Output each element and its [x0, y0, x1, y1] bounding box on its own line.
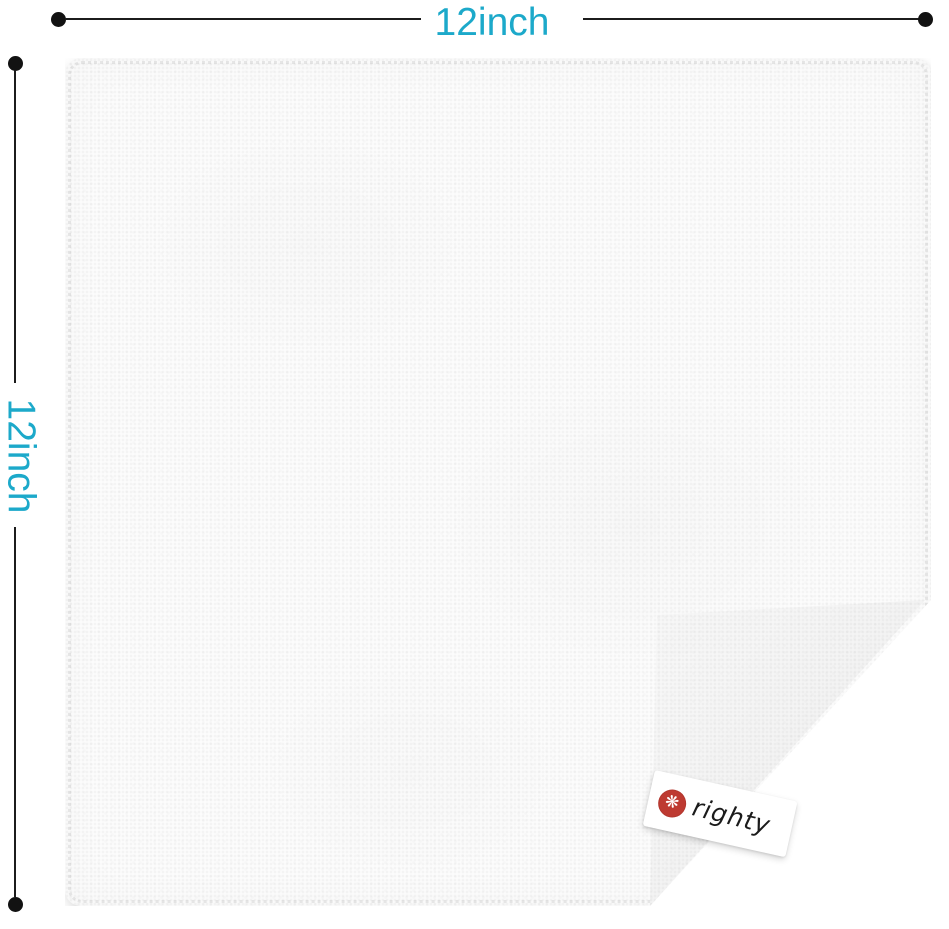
dimension-label-width: 12inch	[435, 3, 550, 42]
cloth-stitched-hem	[68, 61, 928, 903]
dimension-line-left-lower-segment	[14, 527, 16, 897]
microfiber-cloth: ❋ righty	[65, 58, 931, 906]
dimension-endpoint-dot-top-left	[51, 12, 66, 27]
dimension-endpoint-dot-left-top	[8, 56, 23, 71]
dimension-label-height: 12inch	[2, 399, 41, 514]
hand-swirl-icon: ❋	[656, 786, 689, 819]
dimension-endpoint-dot-left-bottom	[8, 897, 23, 912]
dimension-line-left-upper-segment	[14, 70, 16, 383]
dimension-endpoint-dot-top-right	[918, 12, 933, 27]
dimension-line-top-right-segment	[583, 18, 919, 20]
cloth-body	[65, 58, 931, 906]
product-image-canvas: 12inch 12inch ❋ righty	[0, 0, 949, 929]
dimension-line-top-left-segment	[65, 18, 421, 20]
brand-name: righty	[689, 792, 773, 839]
hand-swirl-glyph: ❋	[664, 794, 680, 812]
